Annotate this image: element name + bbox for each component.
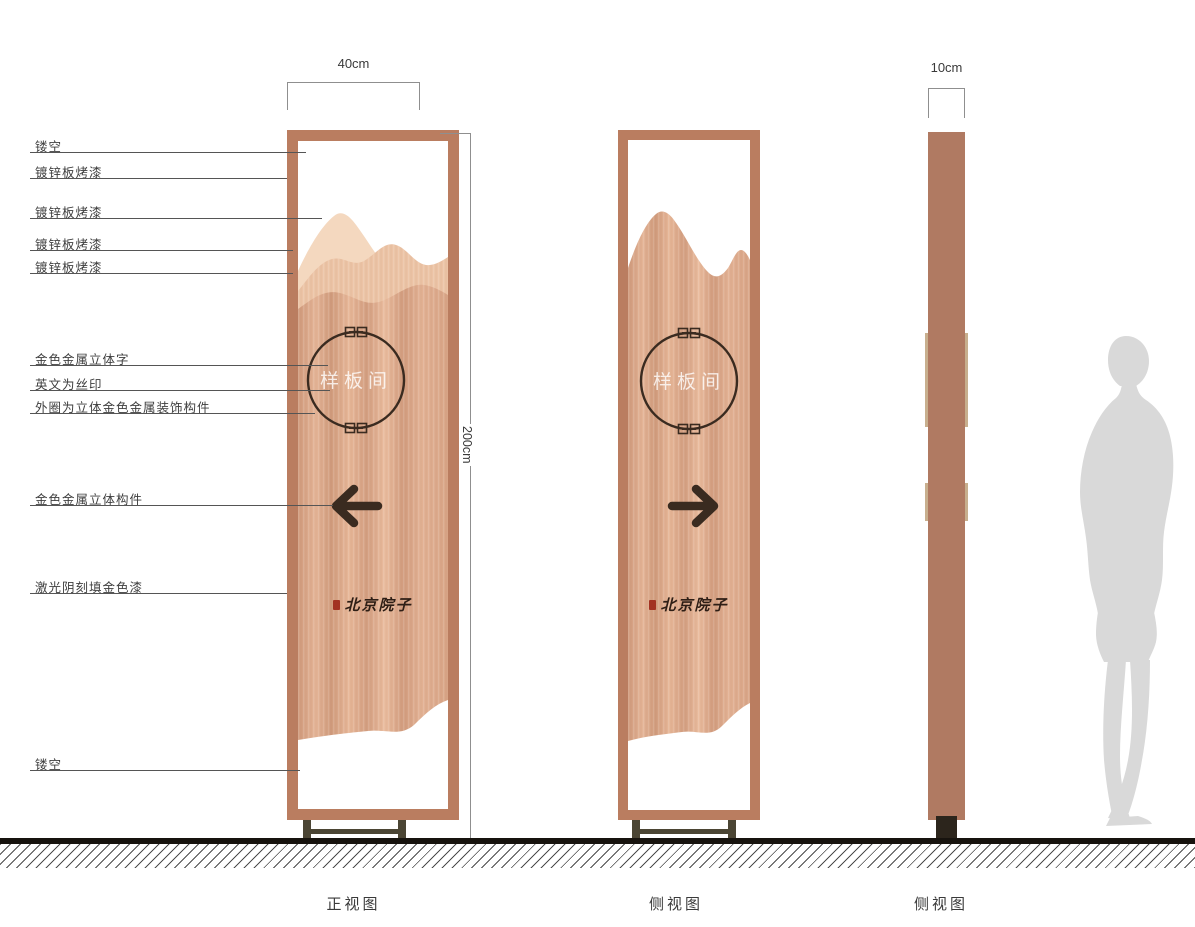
- view-title-side: 侧视图: [881, 893, 1001, 914]
- leader-line: [30, 593, 287, 594]
- brand-calligraphy: 北京院子: [344, 594, 412, 615]
- height-dimension-tick: [440, 133, 470, 134]
- side-foot: [936, 816, 957, 838]
- room-name-text: 样板间: [320, 370, 392, 392]
- height-dimension-label: 200cm: [460, 424, 474, 466]
- human-scale-silhouette: [1042, 336, 1194, 828]
- width-dimension-bracket: [287, 82, 420, 110]
- depth-dimension-bracket: [928, 88, 965, 118]
- width-dimension-label: 40cm: [287, 56, 420, 71]
- room-name-text: 样板间: [653, 371, 725, 393]
- side-panel-profile: [928, 132, 965, 820]
- brand-mark-back: 北京院子: [628, 594, 750, 615]
- seal-icon: [649, 600, 656, 610]
- leader-line: [30, 770, 300, 771]
- back-panel-graphic: 样板间: [628, 140, 750, 810]
- leader-line: [30, 413, 315, 414]
- side-trim-arrow-left: [925, 483, 928, 521]
- signage-drawing-canvas: 样板间 北京院子: [0, 0, 1195, 927]
- seal-icon: [333, 600, 340, 610]
- height-dimension-line: [470, 133, 471, 838]
- view-title-front: 正视图: [287, 893, 420, 914]
- ground-hatch: [0, 844, 1195, 868]
- leader-line: [30, 390, 330, 391]
- leader-line: [30, 178, 287, 179]
- brand-mark-front: 北京院子: [298, 594, 448, 615]
- mountain-silhouette: [628, 212, 750, 741]
- front-panel-graphic: 样板间: [298, 141, 448, 809]
- leader-line: [30, 505, 333, 506]
- mountain-silhouette-layers: [298, 213, 448, 740]
- leader-line: [30, 218, 322, 219]
- leader-line: [30, 152, 306, 153]
- side-trim-ring-right: [965, 333, 968, 427]
- side-trim-ring-left: [925, 333, 928, 427]
- back-foot-bar: [632, 829, 736, 834]
- brand-calligraphy: 北京院子: [660, 594, 728, 615]
- leader-line: [30, 250, 293, 251]
- view-title-back: 侧视图: [616, 893, 736, 914]
- front-foot-bar: [303, 829, 406, 834]
- leader-line: [30, 365, 328, 366]
- side-trim-arrow-right: [965, 483, 968, 521]
- depth-dimension-label: 10cm: [900, 60, 993, 75]
- leader-line: [30, 273, 293, 274]
